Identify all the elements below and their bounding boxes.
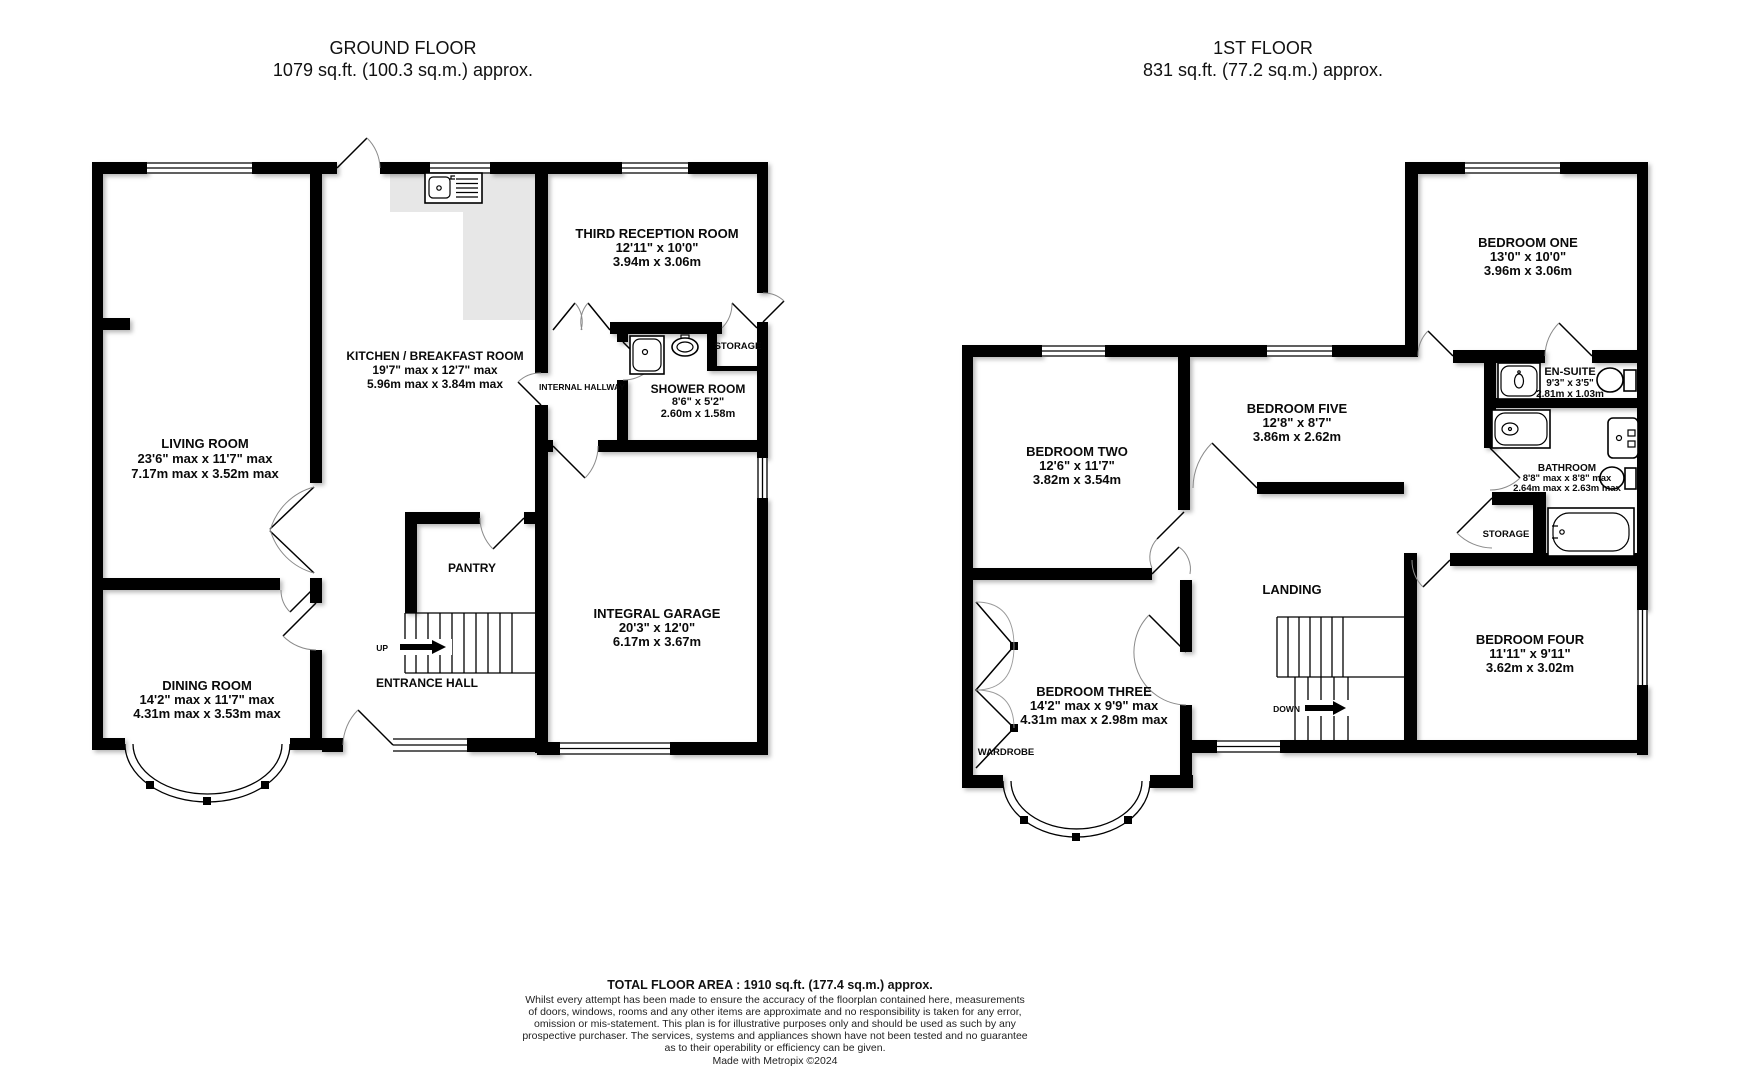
labels: GROUND FLOOR 1079 sq.ft. (100.3 sq.m.) a… (131, 38, 1621, 1067)
room-dims-imperial: 9'3" x 3'5" (1546, 378, 1594, 389)
room-dims-imperial: 12'6" x 11'7" (1039, 458, 1115, 473)
total-floor-area: TOTAL FLOOR AREA : 1910 sq.ft. (177.4 sq… (607, 978, 933, 992)
room-label-garage: INTEGRAL GARAGE 20'3" x 12'0" 6.17m x 3.… (594, 606, 721, 649)
room-label-ensuite: EN-SUITE 9'3" x 3'5" 2.81m x 1.03m (1536, 366, 1604, 400)
label-entrance-hall: ENTRANCE HALL (376, 676, 478, 690)
disclaimer-line: omission or mis-statement. This plan is … (534, 1018, 1017, 1030)
door-storage-first (1457, 498, 1492, 548)
room-name: BEDROOM THREE (1036, 684, 1152, 699)
door-pantry (480, 518, 524, 549)
window (1637, 610, 1648, 685)
door-bedroom-five (1193, 443, 1257, 488)
room-dims-imperial: 19'7" max x 12'7" max (372, 363, 498, 377)
label-down: DOWN (1273, 704, 1300, 714)
room-dims-imperial: 11'11" x 9'11" (1489, 646, 1570, 661)
window (622, 162, 688, 174)
label-storage-ground: STORAGE (715, 341, 762, 352)
room-dims-imperial: 14'2" max x 11'7" max (140, 692, 276, 707)
credit-line: Made with Metropix ©2024 (712, 1055, 837, 1067)
room-name: BEDROOM TWO (1026, 444, 1128, 459)
door-bedroom-two (1150, 512, 1191, 574)
room-dims-imperial: 20'3" x 12'0" (619, 620, 695, 635)
door-front (343, 710, 393, 745)
first-floor-area: 831 sq.ft. (77.2 sq.m.) approx. (1143, 60, 1383, 80)
room-dims-imperial: 12'11" x 10'0" (616, 240, 699, 255)
bay-window-bedroom-three (1003, 781, 1150, 841)
label-storage-first: STORAGE (1483, 529, 1530, 540)
door-garage (553, 446, 598, 478)
room-name: BEDROOM ONE (1478, 235, 1578, 250)
kitchen-sink-icon (425, 173, 482, 203)
door-storage-ground (722, 303, 757, 328)
room-name: INTEGRAL GARAGE (594, 606, 721, 621)
disclaimer-line: Whilst every attempt has been made to en… (525, 994, 1025, 1006)
window (1267, 345, 1332, 357)
stairs-up (396, 613, 535, 673)
window (1465, 162, 1560, 174)
room-name: SHOWER ROOM (651, 382, 746, 396)
window (1042, 345, 1105, 357)
room-dims-metric: 3.82m x 3.54m (1033, 472, 1121, 487)
door-back (337, 138, 380, 168)
disclaimer-line: as to their operability or efficiency ca… (664, 1042, 885, 1054)
door-bedroom-one (1418, 331, 1453, 356)
floorplan-page: GROUND FLOOR 1079 sq.ft. (100.3 sq.m.) a… (0, 0, 1741, 1080)
room-dims-metric: 3.62m x 3.02m (1486, 660, 1574, 675)
room-name: KITCHEN / BREAKFAST ROOM (346, 349, 523, 363)
room-label-bedroom-five: BEDROOM FIVE 12'8" x 8'7" 3.86m x 2.62m (1247, 401, 1348, 444)
room-label-kitchen: KITCHEN / BREAKFAST ROOM 19'7" max x 12'… (346, 349, 523, 391)
room-label-bedroom-three: BEDROOM THREE 14'2" max x 9'9" max 4.31m… (1020, 684, 1168, 727)
door-bedroom-four (1412, 560, 1450, 587)
room-name: EN-SUITE (1544, 366, 1595, 378)
disclaimer-line: prospective purchaser. The services, sys… (522, 1030, 1027, 1042)
window (430, 162, 490, 174)
label-landing: LANDING (1262, 582, 1321, 597)
wardrobe-doors (976, 602, 1018, 768)
room-label-dining: DINING ROOM 14'2" max x 11'7" max 4.31m … (133, 678, 281, 721)
room-dims-metric: 5.96m max x 3.84m max (367, 377, 503, 391)
room-dims-metric: 4.31m max x 2.98m max (1020, 712, 1168, 727)
room-dims-metric: 7.17m max x 3.52m max (131, 466, 279, 481)
door-kitchen (518, 373, 541, 405)
shower-icon (630, 336, 664, 374)
room-name: THIRD RECEPTION ROOM (575, 226, 738, 241)
label-pantry: PANTRY (448, 561, 496, 575)
label-wardrobe: WARDROBE (978, 747, 1034, 758)
room-label-bedroom-four: BEDROOM FOUR 11'11" x 9'11" 3.62m x 3.02… (1476, 632, 1585, 675)
room-dims-metric: 4.31m max x 3.53m max (133, 706, 281, 721)
room-dims-metric: 2.60m x 1.58m (661, 408, 736, 420)
window (1217, 740, 1280, 753)
first-floor-title: 1ST FLOOR (1213, 38, 1313, 58)
door-ensuite (1545, 323, 1592, 356)
room-name: BEDROOM FIVE (1247, 401, 1348, 416)
room-dims-metric: 2.64m max x 2.63m max (1513, 483, 1621, 494)
room-label-shower: SHOWER ROOM 8'6" x 5'2" 2.60m x 1.58m (651, 382, 746, 420)
basin-icon (672, 335, 698, 356)
room-name: BEDROOM FOUR (1476, 632, 1585, 647)
room-name: LIVING ROOM (161, 436, 248, 451)
room-dims-metric: 3.96m x 3.06m (1484, 263, 1572, 278)
garage-door (560, 742, 670, 755)
door-living-double (270, 487, 314, 573)
room-dims-metric: 3.94m x 3.06m (613, 254, 701, 269)
room-dims-imperial: 13'0" x 10'0" (1490, 249, 1566, 264)
bathtub-icon (1548, 508, 1634, 556)
room-name: DINING ROOM (162, 678, 252, 693)
ground-floor-area: 1079 sq.ft. (100.3 sq.m.) approx. (273, 60, 533, 80)
room-dims-metric: 6.17m x 3.67m (613, 634, 701, 649)
window (757, 458, 768, 498)
door-hallway-reception (553, 303, 610, 330)
door-reception-external (763, 293, 784, 322)
room-label-bedroom-one: BEDROOM ONE 13'0" x 10'0" 3.96m x 3.06m (1478, 235, 1578, 278)
ground-floor-title: GROUND FLOOR (329, 38, 476, 58)
room-dims-imperial: 12'8" x 8'7" (1262, 415, 1331, 430)
stairs-down (1277, 617, 1404, 740)
bay-window-dining (125, 744, 290, 805)
room-dims-metric: 2.81m x 1.03m (1536, 389, 1604, 400)
label-up: UP (376, 643, 388, 653)
window (147, 162, 252, 174)
room-dims-imperial: 23'6" max x 11'7" max (138, 451, 274, 466)
room-dims-imperial: 14'2" max x 9'9" max (1030, 698, 1159, 713)
room-label-bathroom: BATHROOM 8'8" max x 8'8" max 2.64m max x… (1513, 463, 1621, 494)
floorplan-drawing: GROUND FLOOR 1079 sq.ft. (100.3 sq.m.) a… (0, 0, 1741, 1080)
bathroom-shower-tray-icon (1492, 410, 1550, 448)
disclaimer-line: of doors, windows, rooms and any other i… (528, 1006, 1021, 1018)
bathroom-sink-icon (1608, 418, 1638, 458)
room-dims-metric: 3.86m x 2.62m (1253, 429, 1341, 444)
room-label-living: LIVING ROOM 23'6" max x 11'7" max 7.17m … (131, 436, 279, 481)
room-label-bedroom-two: BEDROOM TWO 12'6" x 11'7" 3.82m x 3.54m (1026, 444, 1128, 487)
door-living-dining (281, 590, 312, 612)
room-label-reception: THIRD RECEPTION ROOM 12'11" x 10'0" 3.94… (575, 226, 738, 269)
label-internal-hallway: INTERNAL HALLWAY (539, 382, 625, 392)
ensuite-shower-icon (1498, 363, 1540, 399)
room-dims-imperial: 8'6" x 5'2" (672, 396, 724, 408)
window (393, 738, 467, 752)
footer: TOTAL FLOOR AREA : 1910 sq.ft. (177.4 sq… (522, 978, 1027, 1067)
